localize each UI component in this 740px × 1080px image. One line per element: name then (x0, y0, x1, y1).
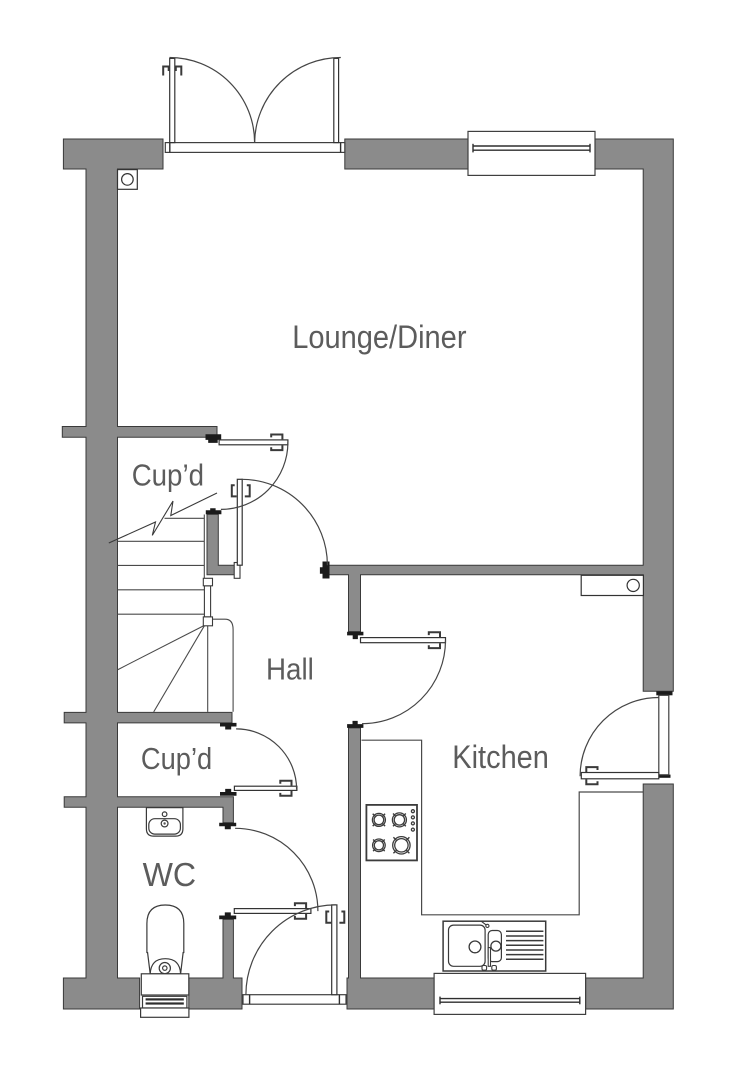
svg-text:Cup’d: Cup’d (132, 458, 204, 492)
svg-text:Kitchen: Kitchen (452, 739, 549, 775)
svg-text:Hall: Hall (266, 653, 314, 687)
svg-text:WC: WC (143, 857, 197, 894)
svg-text:Cup’d: Cup’d (141, 742, 212, 776)
svg-text:Lounge/Diner: Lounge/Diner (292, 319, 467, 355)
